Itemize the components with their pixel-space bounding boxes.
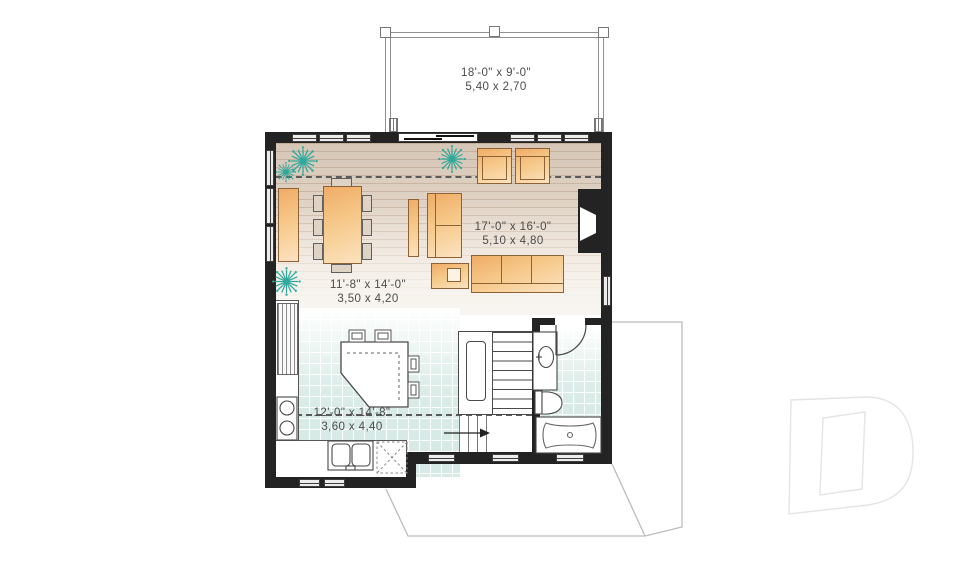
kitchen-dimensions-label: 12'-0" x 14'-8" 3,60 x 4,40 xyxy=(282,406,422,434)
living-dim-metric: 5,10 x 4,80 xyxy=(443,234,583,248)
window xyxy=(492,454,519,462)
sliding-patio-door xyxy=(398,133,478,142)
dining-chair xyxy=(313,219,323,236)
drummond-logo-watermark-icon xyxy=(789,397,913,514)
window xyxy=(537,134,562,142)
armchair-seat xyxy=(482,157,507,180)
bathroom-tile-floor xyxy=(540,326,601,453)
deck-post xyxy=(389,118,398,132)
window xyxy=(556,454,584,462)
window xyxy=(564,134,589,142)
dining-chair xyxy=(331,264,352,273)
window xyxy=(510,134,535,142)
sideboard xyxy=(278,188,299,262)
deck-dim-metric: 5,40 x 2,70 xyxy=(426,80,566,94)
sliding-door-panel xyxy=(436,135,474,137)
window xyxy=(324,479,345,487)
bathroom-wall-top-left xyxy=(532,318,555,325)
armchair xyxy=(515,148,550,184)
bathroom-wall-top-right xyxy=(585,318,601,325)
dining-dim-imperial: 11'-8" x 14'-0" xyxy=(298,278,438,292)
dining-chair xyxy=(362,195,372,212)
armchair-back xyxy=(516,149,549,157)
deck-post xyxy=(489,26,500,37)
armchair xyxy=(477,148,512,184)
staircase-lower-treads xyxy=(459,416,494,452)
window xyxy=(266,188,274,224)
coffee-table-decor xyxy=(447,268,461,282)
dining-dim-metric: 3,50 x 4,20 xyxy=(298,292,438,306)
living-dim-imperial: 17'-0" x 16'-0" xyxy=(443,220,583,234)
kitchen-counter-bottom xyxy=(276,440,407,477)
window xyxy=(292,134,317,142)
console-table xyxy=(408,199,419,257)
window xyxy=(428,454,455,462)
loveseat-back xyxy=(428,194,436,257)
sofa xyxy=(471,255,564,293)
armchair-seat xyxy=(520,157,545,180)
window xyxy=(266,150,274,186)
dining-chair xyxy=(362,219,372,236)
deck-dim-imperial: 18'-0" x 9'-0" xyxy=(426,66,566,80)
window xyxy=(319,134,344,142)
staircase-treads xyxy=(492,332,533,415)
bathroom-wall-left xyxy=(532,318,540,454)
deck-post xyxy=(598,27,609,38)
dining-chair xyxy=(313,243,323,260)
floor-plan-canvas: 18'-0" x 9'-0" 5,40 x 2,70 17'-0" x 16'-… xyxy=(0,0,960,569)
staircase-landing xyxy=(466,341,486,401)
dining-chair xyxy=(362,243,372,260)
ceiling-dashed-line-living xyxy=(276,176,601,178)
window xyxy=(266,226,274,262)
sofa-cushion-divider xyxy=(531,256,532,283)
window xyxy=(603,276,611,306)
deck-post xyxy=(380,27,391,38)
window xyxy=(299,479,320,487)
dining-dimensions-label: 11'-8" x 14'-0" 3,50 x 4,20 xyxy=(298,278,438,306)
kitchen-dim-metric: 3,60 x 4,40 xyxy=(282,420,422,434)
deck-dimensions-label: 18'-0" x 9'-0" 5,40 x 2,70 xyxy=(426,66,566,94)
sliding-door-panel xyxy=(404,138,442,140)
sofa-cushion-divider xyxy=(501,256,502,283)
deck-post xyxy=(594,118,603,132)
dining-table xyxy=(323,186,362,264)
dining-chair xyxy=(313,195,323,212)
kitchen-counter-ribbed-section xyxy=(277,303,298,375)
kitchen-dim-imperial: 12'-0" x 14'-8" xyxy=(282,406,422,420)
window xyxy=(346,134,371,142)
lower-roof-hip-line xyxy=(612,464,645,536)
armchair-back xyxy=(478,149,511,157)
sofa-back xyxy=(472,283,563,292)
living-dimensions-label: 17'-0" x 16'-0" 5,10 x 4,80 xyxy=(443,220,583,248)
